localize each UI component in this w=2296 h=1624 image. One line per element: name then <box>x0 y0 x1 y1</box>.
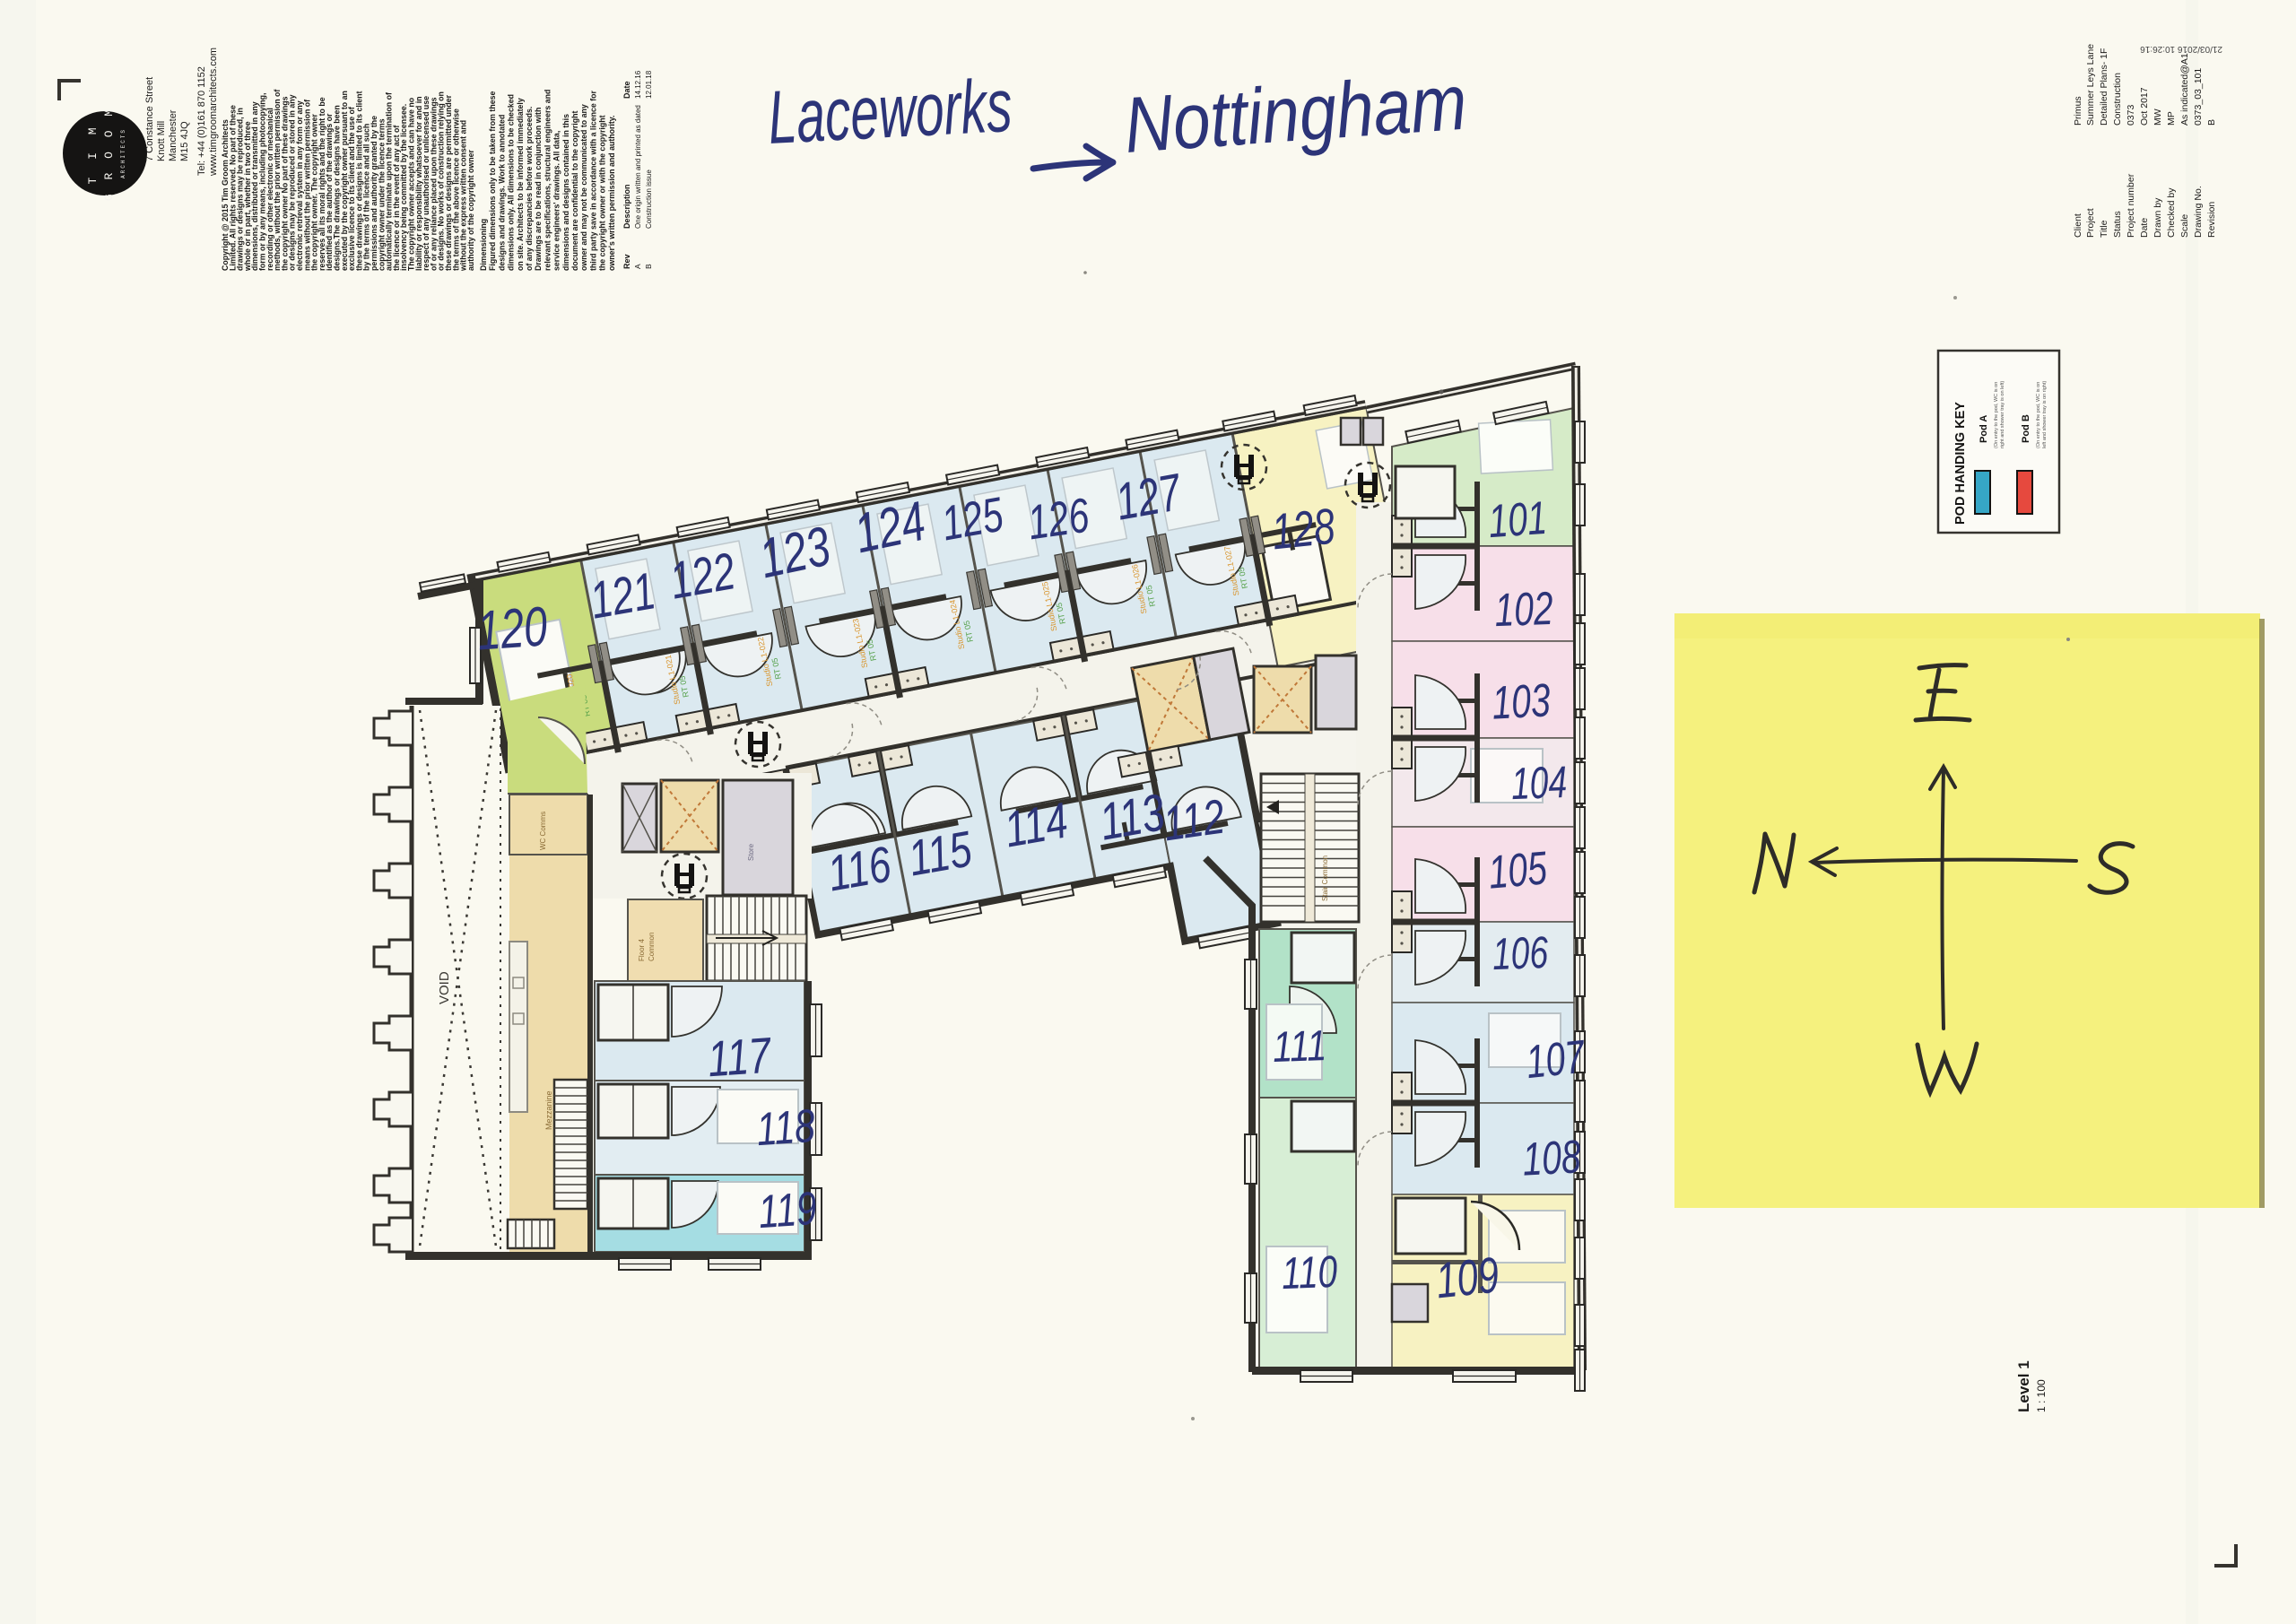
svg-text:Revision: Revision <box>2206 202 2217 238</box>
svg-text:114: 114 <box>1000 791 1072 857</box>
svg-text:108: 108 <box>1521 1131 1582 1185</box>
svg-text:owner and may not be communica: owner and may not be communicated to any <box>579 104 588 271</box>
svg-text:0373_03_101: 0373_03_101 <box>2193 68 2204 126</box>
svg-text:Construction issue: Construction issue <box>645 169 653 229</box>
svg-text:Pod A: Pod A <box>1979 415 1989 443</box>
svg-text:As indicated@A1: As indicated@A1 <box>2179 53 2190 126</box>
svg-text:G R O O M: G R O O M <box>102 106 116 201</box>
svg-text:Drawings are to be read in con: Drawings are to be read in conjunction w… <box>534 108 543 271</box>
svg-text:of any discrepancies before wo: of any discrepancies before work proceed… <box>525 107 534 271</box>
svg-text:VOID: VOID <box>437 971 452 1004</box>
svg-text:103: 103 <box>1491 674 1552 729</box>
svg-text:Project number: Project number <box>2126 173 2136 238</box>
svg-text:12.01.18: 12.01.18 <box>645 70 653 99</box>
svg-text:B: B <box>644 264 653 269</box>
svg-text:104: 104 <box>1510 757 1568 809</box>
svg-text:105: 105 <box>1486 842 1550 899</box>
svg-text:owner's written permission and: owner's written permission and authority… <box>607 116 616 272</box>
svg-text:115: 115 <box>904 820 977 886</box>
svg-text:Store: Store <box>747 843 755 861</box>
svg-text:Dimensioning: Dimensioning <box>479 219 488 271</box>
svg-text:left and shower tray is on rig: left and shower tray is on right) <box>2042 381 2048 448</box>
svg-text:Primus: Primus <box>2073 96 2083 126</box>
svg-text:Knott Mill: Knott Mill <box>156 121 167 161</box>
svg-text:Title: Title <box>2099 220 2109 238</box>
svg-text:Mezzanine: Mezzanine <box>544 1090 553 1130</box>
svg-text:A: A <box>633 264 642 269</box>
svg-text:Date: Date <box>622 81 631 99</box>
svg-text:Tel: +44 (0)161 870 1152: Tel: +44 (0)161 870 1152 <box>196 66 207 176</box>
svg-text:Summer Leys Lane: Summer Leys Lane <box>2085 44 2096 126</box>
svg-text:M15 4JQ: M15 4JQ <box>179 121 190 161</box>
svg-text:MP: MP <box>2166 111 2177 126</box>
svg-text:119: 119 <box>757 1183 819 1238</box>
svg-text:106: 106 <box>1492 927 1549 979</box>
svg-text:dimensions and designs contain: dimensions and designs contained in this <box>561 114 570 271</box>
svg-text:107: 107 <box>1524 1031 1588 1090</box>
svg-text:One origin written and printed: One origin written and printed as dated <box>634 105 642 229</box>
svg-text:service engineers' drawings. A: service engineers' drawings. All data, <box>552 131 561 271</box>
svg-text:127: 127 <box>1111 463 1187 532</box>
svg-text:Manchester: Manchester <box>168 109 178 161</box>
svg-text:Description: Description <box>622 184 631 229</box>
svg-text:Date: Date <box>2139 218 2150 238</box>
svg-text:Stair Common: Stair Common <box>1321 855 1329 901</box>
svg-text:117: 117 <box>706 1027 774 1088</box>
svg-text:MW: MW <box>2152 109 2163 126</box>
svg-text:7 Constance Street: 7 Constance Street <box>144 77 155 161</box>
svg-text:126: 126 <box>1024 488 1092 550</box>
svg-text:WC Comms: WC Comms <box>539 812 547 850</box>
svg-text:Checked by: Checked by <box>2166 187 2177 238</box>
svg-text:(On entry to the pod, WC is on: (On entry to the pod, WC is on <box>1994 382 1999 448</box>
svg-text:118: 118 <box>755 1100 817 1156</box>
svg-text:authority of the copyright own: authority of the copyright owner <box>466 150 475 271</box>
svg-text:Level 1: Level 1 <box>2015 1360 2032 1412</box>
svg-text:125: 125 <box>937 487 1007 551</box>
svg-text:102: 102 <box>1494 583 1554 637</box>
svg-text:0373: 0373 <box>2126 104 2136 126</box>
svg-text:Floor 4: Floor 4 <box>638 939 646 961</box>
svg-text:101: 101 <box>1487 492 1549 548</box>
svg-text:Common: Common <box>648 933 656 961</box>
svg-text:Oct 2017: Oct 2017 <box>2139 87 2150 126</box>
svg-text:113: 113 <box>1095 783 1169 852</box>
svg-text:right and shower tray is on le: right and shower tray is on left) <box>2000 381 2005 448</box>
svg-text:on site. Architects to be inf: on site. Architects to be informed immed… <box>516 98 525 271</box>
svg-text:document are confidential to t: document are confidential to the copyrig… <box>570 111 579 271</box>
svg-text:Drawing No.: Drawing No. <box>2193 186 2204 238</box>
svg-text:T I M: T I M <box>86 122 100 184</box>
svg-text:third party save in accordance: third party save in accordance with a li… <box>588 90 597 271</box>
svg-text:122: 122 <box>665 542 739 611</box>
svg-text:Laceworks: Laceworks <box>766 63 1014 160</box>
svg-text:designs and drawings. Work to: designs and drawings. Work to annotated <box>497 115 506 271</box>
svg-text:Scale: Scale <box>2179 214 2190 238</box>
svg-text:www.timgroomarchitects.com: www.timgroomarchitects.com <box>208 48 219 177</box>
svg-text:POD HANDING KEY: POD HANDING KEY <box>1953 402 1968 525</box>
svg-text:Client: Client <box>2073 213 2083 238</box>
svg-text:109: 109 <box>1433 1246 1501 1309</box>
svg-text:the copyright owner or with th: the copyright owner or with the copyrigh… <box>598 115 607 271</box>
svg-text:111: 111 <box>1272 1022 1327 1072</box>
svg-text:B: B <box>2206 119 2217 126</box>
svg-text:dimensions only. All dimensio: dimensions only. All dimensions to be ch… <box>507 94 516 271</box>
svg-text:116: 116 <box>823 835 896 901</box>
svg-text:Figured dimensions only to be: Figured dimensions only to be taken from… <box>488 91 497 271</box>
svg-text:(On entry to the pod, WC is on: (On entry to the pod, WC is on <box>2036 382 2041 448</box>
svg-text:110: 110 <box>1281 1246 1338 1298</box>
svg-text:relevant specifications, struc: relevant specifications, structural engi… <box>543 90 552 271</box>
svg-text:Project: Project <box>2085 208 2096 238</box>
svg-text:21/03/2016 10:26:16: 21/03/2016 10:26:16 <box>2140 44 2222 54</box>
svg-text:Drawn by: Drawn by <box>2152 197 2163 238</box>
svg-text:1 : 100: 1 : 100 <box>2035 1379 2048 1412</box>
svg-text:ARCHITECTS: ARCHITECTS <box>120 128 126 178</box>
svg-text:Construction: Construction <box>2112 73 2123 126</box>
svg-text:128: 128 <box>1269 498 1337 560</box>
svg-text:120: 120 <box>475 595 550 662</box>
svg-text:Pod B: Pod B <box>2021 414 2031 443</box>
svg-text:112: 112 <box>1160 790 1228 852</box>
svg-text:121: 121 <box>586 561 659 630</box>
svg-text:Detailed Plans- 1F: Detailed Plans- 1F <box>2099 48 2109 126</box>
svg-text:Status: Status <box>2112 211 2123 238</box>
svg-text:14.12.16: 14.12.16 <box>634 70 642 99</box>
svg-text:Rev: Rev <box>622 254 631 269</box>
